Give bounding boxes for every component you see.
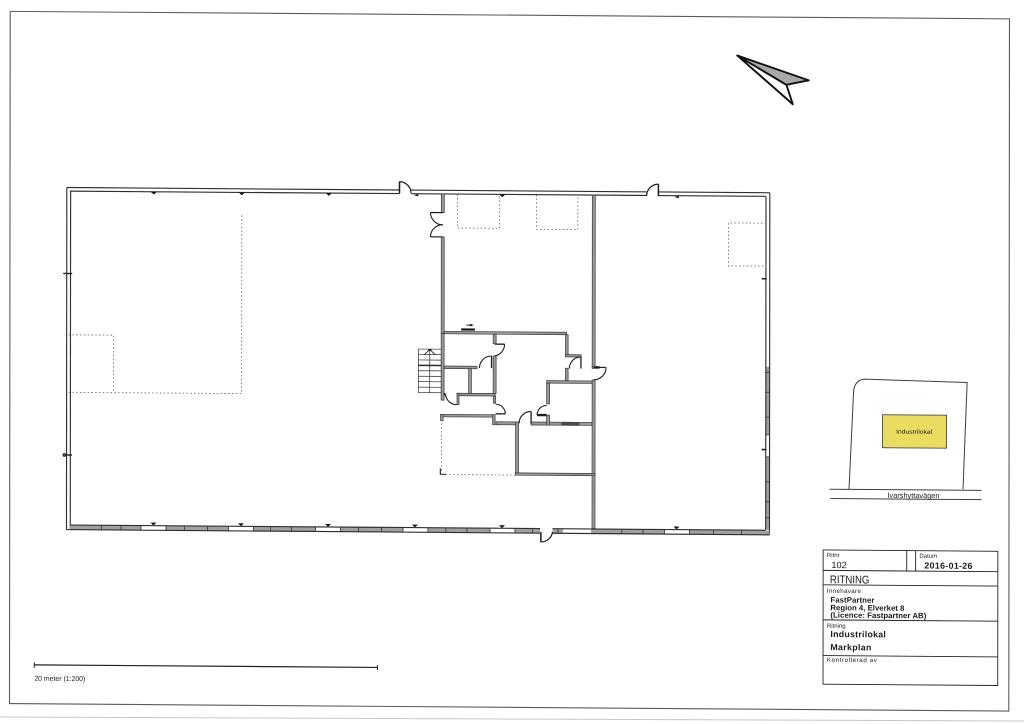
svg-text:Industrilokal: Industrilokal [896, 430, 932, 436]
svg-text:Industrilokal: Industrilokal [830, 629, 886, 639]
svg-text:102: 102 [831, 560, 846, 570]
svg-text:Ivarshyttavägen: Ivarshyttavägen [888, 491, 940, 500]
svg-text:Kontrollerad av: Kontrollerad av [827, 657, 878, 664]
svg-text:Markplan: Markplan [830, 642, 871, 652]
svg-text:Ritnr: Ritnr [827, 553, 840, 559]
svg-text:Datum: Datum [919, 554, 937, 560]
svg-text:RITNING: RITNING [830, 574, 870, 586]
svg-text:2016-01-26: 2016-01-26 [924, 561, 972, 571]
svg-text:20 meter (1:200): 20 meter (1:200) [34, 676, 85, 683]
svg-text:Innehavare: Innehavare [827, 588, 862, 595]
svg-text:(Licence: Fastpartner AB): (Licence: Fastpartner AB) [830, 611, 926, 621]
